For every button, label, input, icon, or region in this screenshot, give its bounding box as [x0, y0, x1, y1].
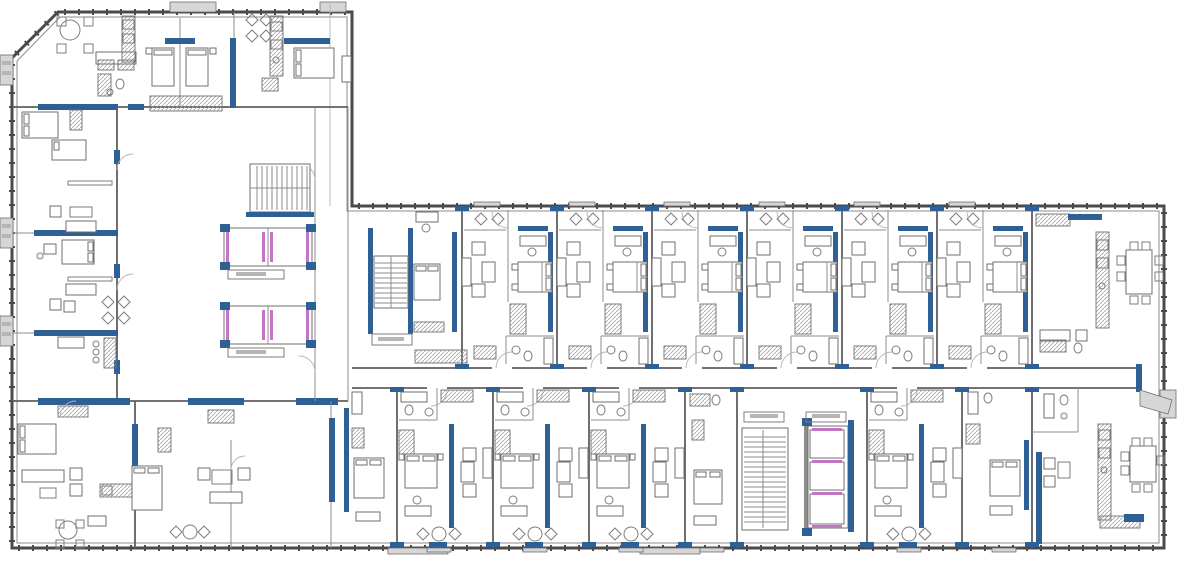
apartment-unit-bottom-2 — [495, 382, 588, 547]
left-wing — [12, 12, 384, 548]
apartment-unit-bottom-3 — [591, 382, 684, 547]
apartment-unit-top-6 — [937, 210, 1029, 372]
elevator-core-left — [220, 164, 316, 357]
apartment-unit-top-3 — [652, 210, 744, 372]
floor-plan-page — [0, 0, 1180, 574]
apartment-unit-bottom-4 — [869, 382, 962, 547]
apartment-unit-bottom-1 — [399, 382, 492, 547]
apartment-unit-top-4 — [747, 210, 839, 372]
floor-plan-canvas — [0, 0, 1180, 574]
apartment-unit-top-2 — [557, 210, 649, 372]
stair-elevator-core-right — [742, 412, 854, 536]
apartment-unit-top-1 — [462, 210, 554, 372]
apartment-unit-top-5 — [842, 210, 934, 372]
